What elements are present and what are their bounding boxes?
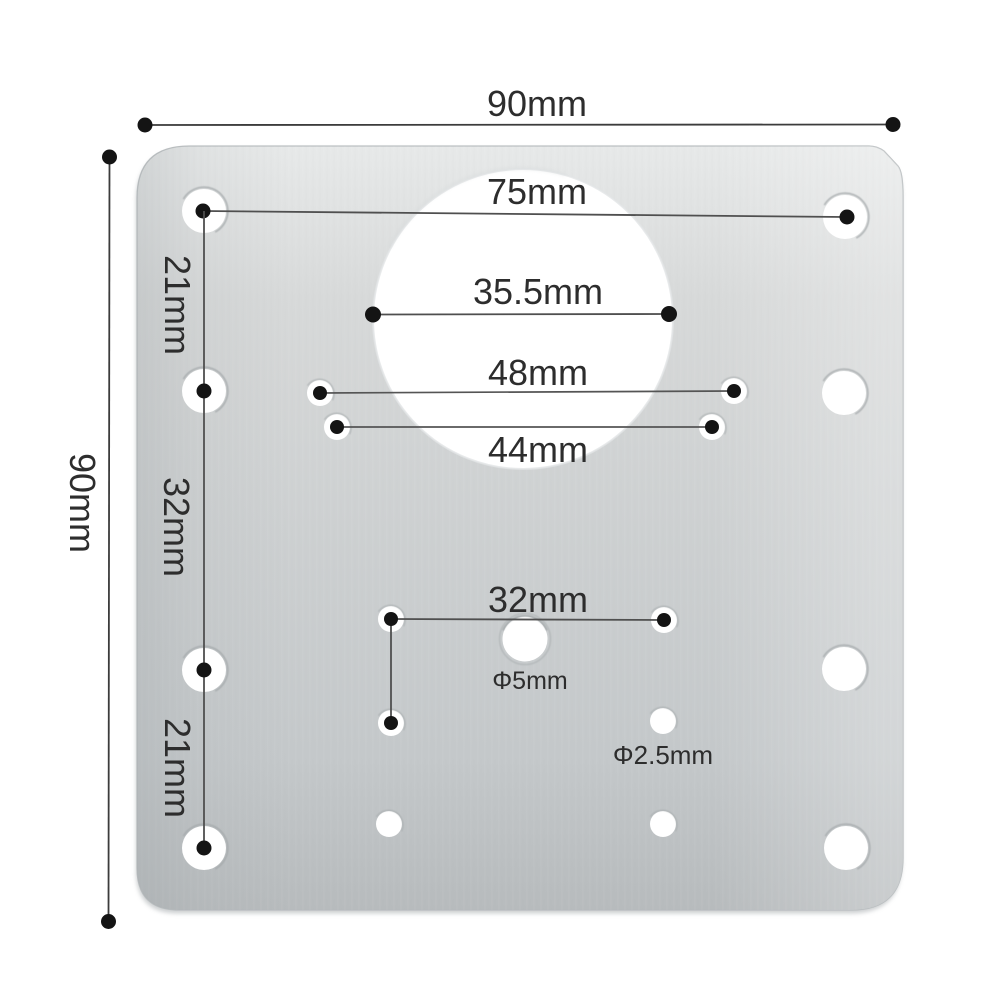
- svg-text:44mm: 44mm: [488, 429, 588, 470]
- svg-text:32mm: 32mm: [156, 477, 197, 577]
- svg-text:90mm: 90mm: [487, 83, 587, 124]
- svg-text:48mm: 48mm: [488, 352, 588, 393]
- svg-text:21mm: 21mm: [157, 255, 198, 355]
- svg-text:90mm: 90mm: [62, 453, 103, 553]
- svg-text:35.5mm: 35.5mm: [473, 271, 603, 312]
- svg-text:Φ2.5mm: Φ2.5mm: [613, 740, 713, 770]
- svg-text:75mm: 75mm: [487, 171, 587, 212]
- svg-text:32mm: 32mm: [488, 579, 588, 620]
- svg-text:21mm: 21mm: [157, 718, 198, 818]
- svg-text:Φ5mm: Φ5mm: [492, 667, 568, 695]
